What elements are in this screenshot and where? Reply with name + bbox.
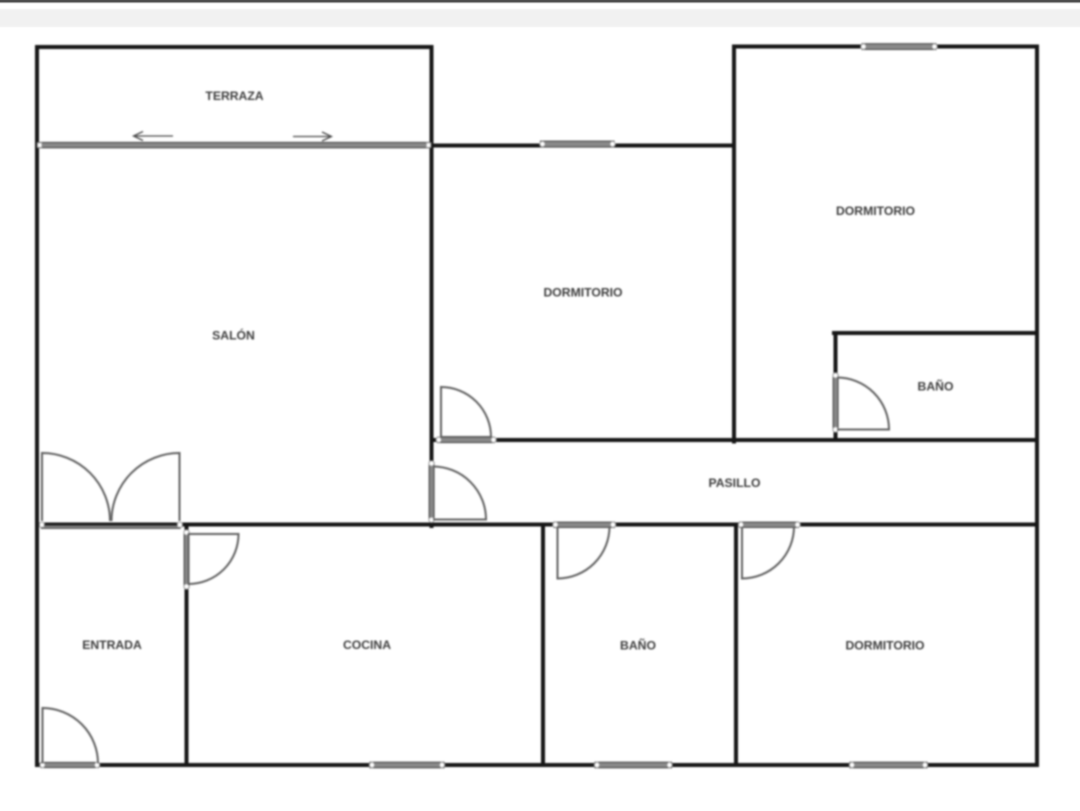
svg-text:PASILLO: PASILLO: [709, 476, 761, 490]
svg-text:DORMITORIO: DORMITORIO: [544, 286, 623, 300]
svg-text:DORMITORIO: DORMITORIO: [846, 639, 925, 653]
svg-text:BAÑO: BAÑO: [918, 379, 954, 394]
svg-text:TERRAZA: TERRAZA: [205, 89, 263, 103]
svg-text:SALÓN: SALÓN: [212, 328, 255, 343]
svg-text:ENTRADA: ENTRADA: [82, 638, 142, 652]
svg-text:BAÑO: BAÑO: [620, 638, 656, 653]
svg-text:DORMITORIO: DORMITORIO: [836, 204, 915, 218]
svg-text:COCINA: COCINA: [343, 638, 391, 652]
